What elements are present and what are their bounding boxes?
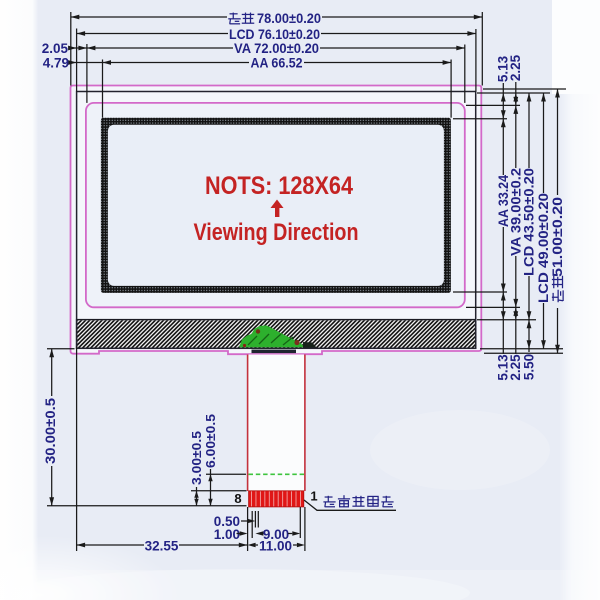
svg-text:2.05: 2.05 <box>42 41 69 56</box>
svg-text:Viewing Direction: Viewing Direction <box>194 219 359 246</box>
svg-text:30.00±0.5: 30.00±0.5 <box>43 397 58 464</box>
svg-text:VA 72.00±0.20: VA 72.00±0.20 <box>234 41 319 56</box>
svg-text:1: 1 <box>310 489 317 504</box>
svg-text:6.00±0.5: 6.00±0.5 <box>203 414 218 468</box>
svg-text:3.00±0.5: 3.00±0.5 <box>189 431 204 485</box>
svg-text:NOTS: 128X64: NOTS: 128X64 <box>205 172 353 200</box>
svg-text:1.00: 1.00 <box>214 527 240 542</box>
svg-text:5.50: 5.50 <box>522 354 537 380</box>
svg-text:8: 8 <box>234 491 241 506</box>
svg-text:4.79: 4.79 <box>43 55 69 70</box>
svg-text:LCD 49.00±0.20: LCD 49.00±0.20 <box>536 193 551 303</box>
svg-text:51.00±0.20: 51.00±0.20 <box>550 197 565 277</box>
svg-text:LCD 76.10±0.20: LCD 76.10±0.20 <box>229 27 320 42</box>
svg-text:LCD 43.50±0.20: LCD 43.50±0.20 <box>522 168 537 276</box>
svg-text:11.00: 11.00 <box>259 539 292 554</box>
svg-text:2.25: 2.25 <box>508 54 523 81</box>
svg-text:78.00±0.20: 78.00±0.20 <box>257 11 321 26</box>
svg-text:AA 66.52: AA 66.52 <box>251 56 303 71</box>
svg-text:32.55: 32.55 <box>145 538 179 553</box>
